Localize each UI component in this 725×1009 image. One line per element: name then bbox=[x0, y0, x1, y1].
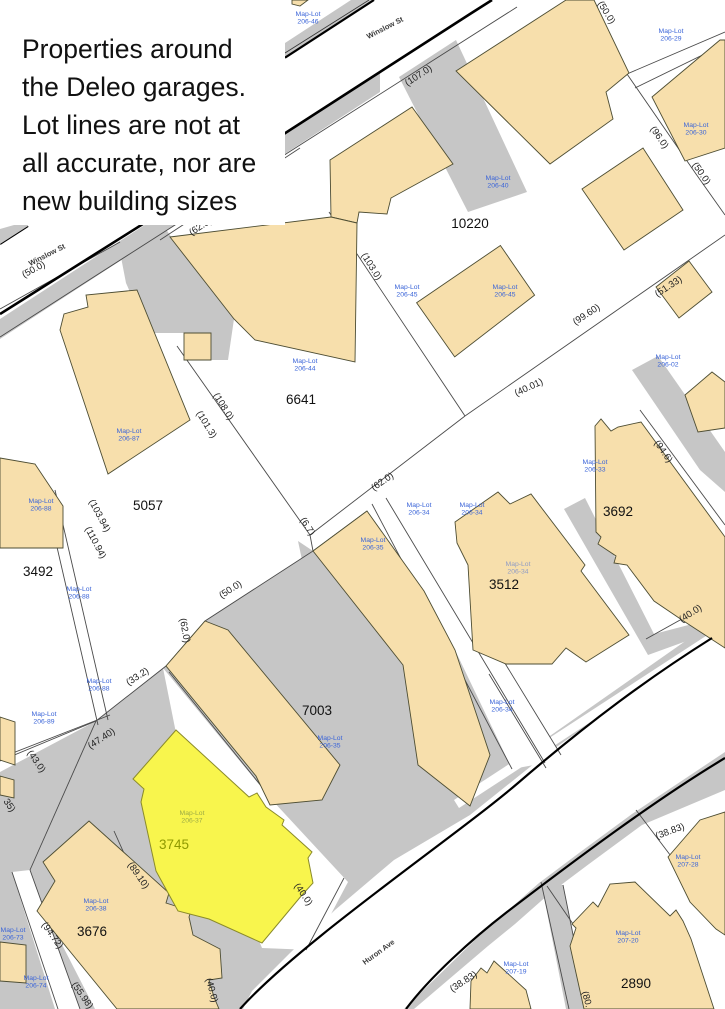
svg-text:Map-Lot206-35: Map-Lot206-35 bbox=[318, 735, 343, 750]
svg-text:Map-Lot206-74: Map-Lot206-74 bbox=[24, 975, 49, 990]
svg-text:Map-Lot206-40: Map-Lot206-40 bbox=[486, 175, 511, 190]
svg-text:6641: 6641 bbox=[286, 392, 316, 407]
svg-text:Map-Lot206-45: Map-Lot206-45 bbox=[395, 284, 420, 299]
svg-text:Map-Lot206-29: Map-Lot206-29 bbox=[659, 28, 684, 43]
svg-text:Map-Lot206-30: Map-Lot206-30 bbox=[684, 122, 709, 137]
svg-text:Map-Lot206-44: Map-Lot206-44 bbox=[293, 358, 318, 373]
svg-text:Map-Lot206-89: Map-Lot206-89 bbox=[32, 711, 57, 726]
svg-text:Map-Lot206-33: Map-Lot206-33 bbox=[583, 459, 608, 474]
svg-text:Map-Lot206-45: Map-Lot206-45 bbox=[493, 284, 518, 299]
svg-text:Map-Lot206-37: Map-Lot206-37 bbox=[180, 810, 205, 825]
svg-text:3492: 3492 bbox=[23, 564, 53, 579]
svg-text:Map-Lot206-34: Map-Lot206-34 bbox=[407, 502, 432, 517]
svg-text:Map-Lot206-34: Map-Lot206-34 bbox=[460, 502, 485, 517]
svg-text:10220: 10220 bbox=[451, 216, 489, 231]
svg-text:Map-Lot206-34: Map-Lot206-34 bbox=[506, 561, 531, 576]
svg-text:3692: 3692 bbox=[603, 504, 633, 519]
svg-text:Map-Lot206-46: Map-Lot206-46 bbox=[296, 11, 321, 26]
svg-text:Map-Lot206-88: Map-Lot206-88 bbox=[67, 586, 92, 601]
svg-text:Map-Lot206-87: Map-Lot206-87 bbox=[117, 428, 142, 443]
svg-text:Map-Lot207-28: Map-Lot207-28 bbox=[676, 854, 701, 869]
svg-text:Map-Lot206-73: Map-Lot206-73 bbox=[1, 927, 26, 942]
svg-text:Map-Lot207-19: Map-Lot207-19 bbox=[504, 961, 529, 976]
svg-text:5057: 5057 bbox=[133, 498, 163, 513]
svg-text:3745: 3745 bbox=[159, 837, 189, 852]
svg-text:2890: 2890 bbox=[621, 976, 651, 991]
svg-text:Map-Lot206-35: Map-Lot206-35 bbox=[361, 537, 386, 552]
svg-text:Map-Lot206-02: Map-Lot206-02 bbox=[656, 354, 681, 369]
svg-text:Map-Lot206-88: Map-Lot206-88 bbox=[87, 678, 112, 693]
svg-text:Map-Lot206-88: Map-Lot206-88 bbox=[29, 498, 54, 513]
svg-text:Map-Lot207-20: Map-Lot207-20 bbox=[616, 930, 641, 945]
svg-text:3512: 3512 bbox=[489, 577, 519, 592]
svg-text:Map-Lot206-34: Map-Lot206-34 bbox=[490, 699, 515, 714]
svg-text:7003: 7003 bbox=[302, 703, 332, 718]
svg-text:3676: 3676 bbox=[77, 924, 107, 939]
svg-text:Map-Lot206-38: Map-Lot206-38 bbox=[84, 898, 109, 913]
